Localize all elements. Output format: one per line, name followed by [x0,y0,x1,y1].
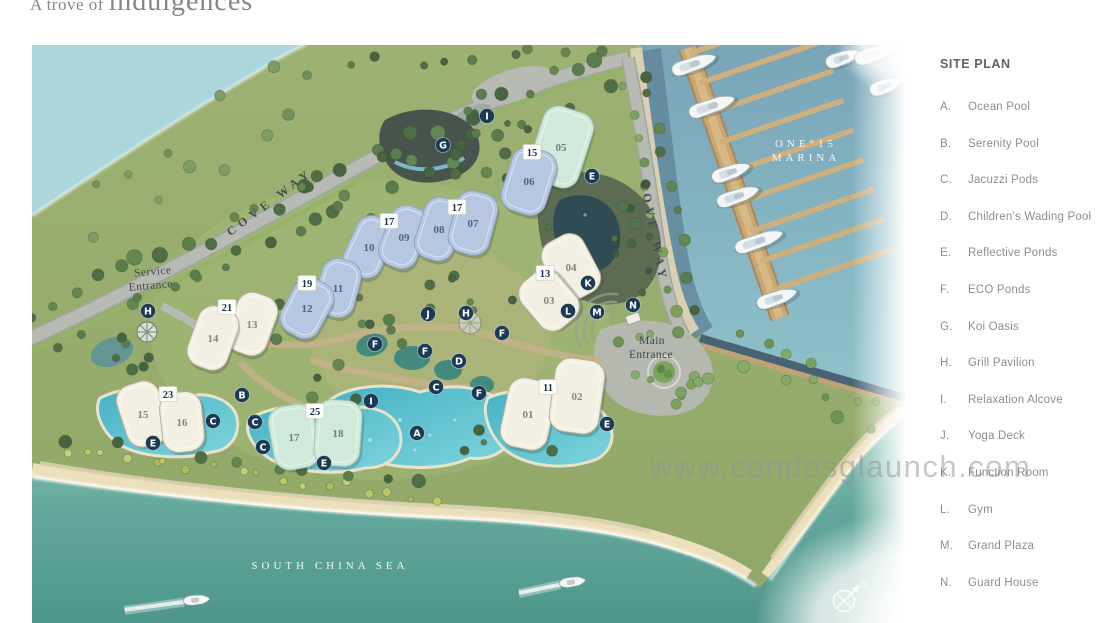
map-marker-N: N [626,298,641,313]
map-marker-D: D [452,354,467,369]
svg-text:15: 15 [527,148,538,159]
map-label: ONE°15 [775,138,837,150]
unit-number: 15 [138,409,150,421]
svg-text:17: 17 [452,203,463,214]
svg-text:H: H [144,306,152,317]
unit-number: 13 [247,319,259,331]
svg-text:E: E [589,171,596,182]
map-marker-H: H [141,304,156,319]
legend-title: SITE PLAN [940,57,1011,71]
legend-item-F: F.ECO Ponds [940,284,1031,296]
map-marker-E: E [600,417,615,432]
legend-item-E: E.Reflective Ponds [940,247,1058,259]
block-label-17: 17 [380,214,398,229]
svg-text:H: H [462,308,470,319]
legend-item-key: J. [940,430,968,442]
svg-text:A: A [413,428,421,439]
unit-number: 08 [434,224,446,236]
legend-item-key: A. [940,101,968,113]
unit-number: 07 [468,218,480,230]
map-marker-I: I [480,109,495,124]
unit-number: 05 [556,142,568,154]
unit-number: 11 [333,283,343,295]
map-marker-F: F [418,344,433,359]
unit-number: 03 [544,295,556,307]
unit-number: 17 [289,432,301,444]
map-label: SOUTH CHINA SEA [251,560,408,572]
block-label-13: 13 [536,266,554,281]
svg-text:L: L [565,306,571,317]
map-marker-J: J [421,307,436,322]
legend-item-label: Reflective Ponds [968,247,1058,259]
map-label: Main [639,335,665,347]
unit-number: 18 [333,428,345,440]
legend-item-J: J.Yoga Deck [940,430,1025,442]
svg-text:G: G [439,140,447,151]
svg-text:19: 19 [302,279,313,290]
svg-text:C: C [252,417,259,428]
map-marker-E: E [585,169,600,184]
legend-item-C: C.Jacuzzi Pods [940,174,1038,186]
map-marker-C: C [256,440,271,455]
unit-number: 04 [566,262,578,274]
legend-item-key: N. [940,577,968,589]
map-label: Entrance [629,349,673,361]
legend-item-label: Ocean Pool [968,101,1030,113]
map-marker-I: I [364,394,379,409]
map-marker-C: C [248,415,263,430]
svg-text:F: F [422,346,429,357]
legend-item-key: H. [940,357,968,369]
unit-number: 12 [302,303,314,315]
unit-number: 09 [399,232,411,244]
legend-item-label: Grill Pavilion [968,357,1035,369]
map-marker-C: C [429,380,444,395]
legend-item-key: E. [940,247,968,259]
svg-text:N: N [629,300,637,311]
legend-item-label: Guard House [968,577,1039,589]
legend-item-key: F. [940,284,968,296]
svg-text:11: 11 [543,383,553,394]
unit-number: 06 [524,176,536,188]
map-marker-L: L [561,304,576,319]
map-marker-E: E [146,436,161,451]
block-label-21: 21 [218,300,236,315]
svg-text:C: C [433,382,440,393]
legend-item-key: C. [940,174,968,186]
block-label-23: 23 [159,387,177,402]
map-label: MARINA [772,152,841,164]
block-label-17: 17 [448,200,466,215]
legend-item-key: I. [940,394,968,406]
svg-text:K: K [584,278,592,289]
block-label-25: 25 [306,404,324,419]
legend-item-M: M.Grand Plaza [940,540,1034,552]
page-title: A trove of indulgences [30,0,253,18]
unit-number: 16 [177,417,189,429]
svg-text:B: B [238,390,245,401]
svg-text:M: M [592,307,601,318]
svg-text:13: 13 [540,269,551,280]
legend-item-N: N.Guard House [940,577,1039,589]
legend-item-label: ECO Ponds [968,284,1031,296]
svg-text:C: C [210,416,217,427]
block-label-15: 15 [523,145,541,160]
site-plan-legend: SITE PLAN A.Ocean PoolB.Serenity PoolC.J… [940,0,1108,623]
block-label-11: 11 [539,380,557,395]
svg-text:C: C [260,442,267,453]
site-plan-illustration: 050610090807111213140403010215161718 151… [32,45,905,623]
legend-item-key: D. [940,211,968,223]
legend-item-label: Yoga Deck [968,430,1025,442]
map-marker-A: A [410,426,425,441]
legend-item-label: Serenity Pool [968,138,1039,150]
page-title-prefix: A trove of [30,0,104,14]
map-marker-C: C [206,414,221,429]
legend-item-I: I.Relaxation Alcove [940,394,1063,406]
svg-text:I: I [485,111,489,122]
legend-item-key: M. [940,540,968,552]
map-marker-K: K [581,276,596,291]
legend-item-label: Children’s Wading Pool [968,211,1091,223]
block-label-19: 19 [298,276,316,291]
map-marker-B: B [235,388,250,403]
legend-item-D: D.Children’s Wading Pool [940,211,1091,223]
svg-text:D: D [455,356,463,367]
map-marker-H: H [459,306,474,321]
svg-text:E: E [150,438,157,449]
site-plan-page: A trove of indulgences [0,0,1110,623]
unit-number: 10 [364,242,376,254]
watermark: www.condosglaunch.com [650,449,1031,485]
unit-number: 02 [572,391,584,403]
svg-text:23: 23 [163,390,174,401]
unit-number: 01 [523,409,534,421]
map-marker-F: F [495,326,510,341]
legend-item-B: B.Serenity Pool [940,138,1039,150]
map-marker-M: M [590,305,605,320]
legend-item-label: Jacuzzi Pods [968,174,1038,186]
legend-item-label: Koi Oasis [968,321,1019,333]
map-marker-F: F [368,337,383,352]
page-title-emphasis: indulgences [108,0,253,17]
map-marker-E: E [317,456,332,471]
site-plan-map: 050610090807111213140403010215161718 151… [32,45,905,623]
legend-item-L: L.Gym [940,504,993,516]
legend-item-label: Grand Plaza [968,540,1034,552]
legend-item-A: A.Ocean Pool [940,101,1030,113]
svg-text:25: 25 [310,407,321,418]
legend-item-label: Gym [968,504,993,516]
svg-text:J: J [425,309,430,320]
legend-item-G: G.Koi Oasis [940,321,1019,333]
svg-text:I: I [369,396,373,407]
legend-item-key: B. [940,138,968,150]
map-marker-G: G [436,138,451,153]
legend-item-key: G. [940,321,968,333]
svg-text:17: 17 [384,217,395,228]
svg-text:F: F [499,328,506,339]
svg-text:F: F [476,388,483,399]
legend-item-key: L. [940,504,968,516]
svg-text:21: 21 [222,303,233,314]
svg-text:E: E [321,458,328,469]
legend-item-label: Relaxation Alcove [968,394,1063,406]
svg-text:E: E [604,419,611,430]
map-marker-F: F [472,386,487,401]
unit-number: 14 [208,333,220,345]
svg-text:F: F [372,339,379,350]
legend-item-H: H.Grill Pavilion [940,357,1035,369]
